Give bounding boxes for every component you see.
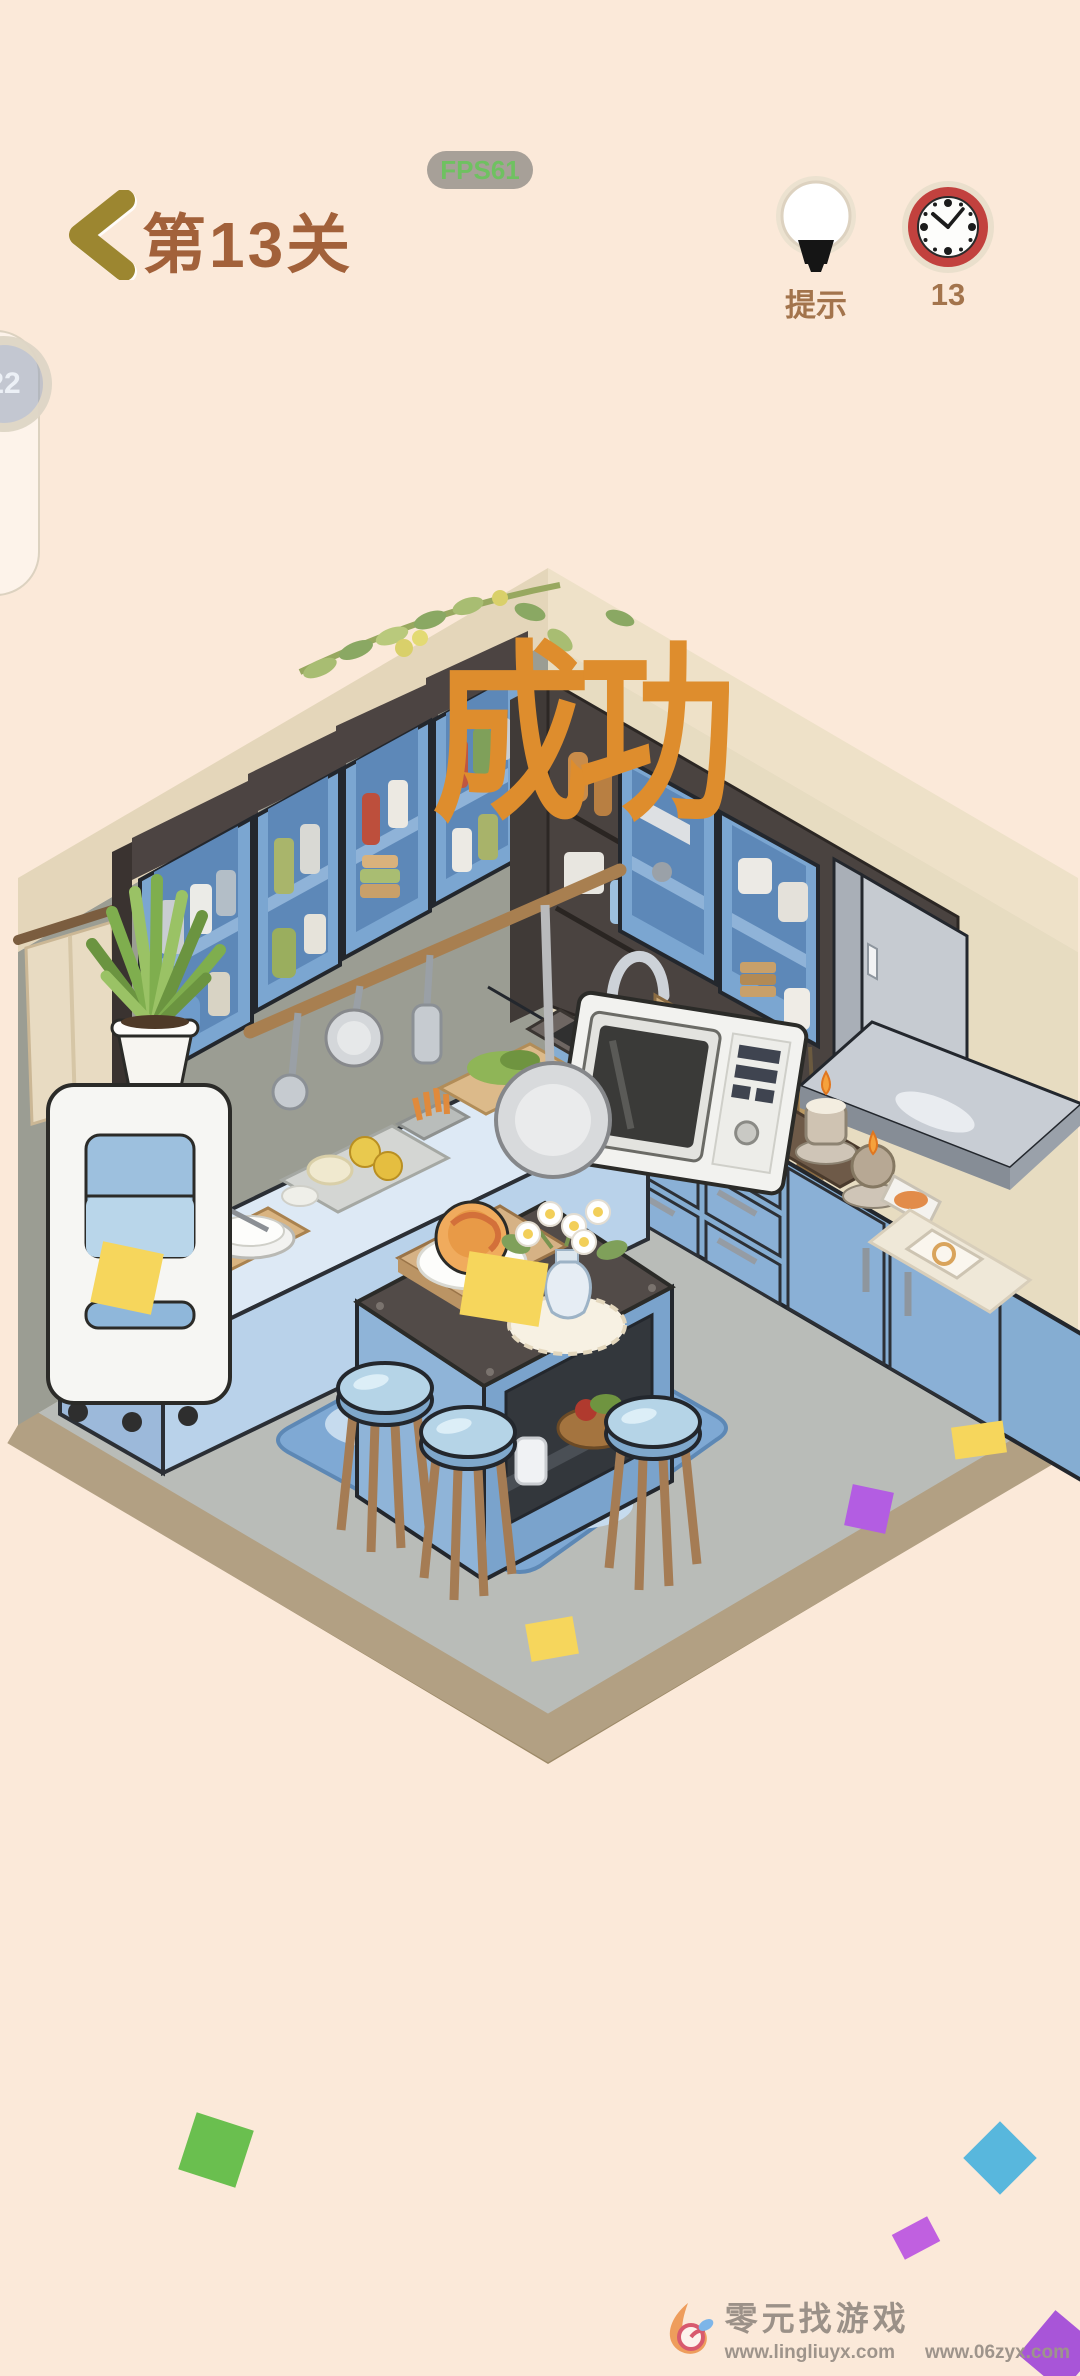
brand-url-1: www.lingliuyx.com bbox=[725, 2342, 895, 2364]
game-screen: 第13关 FPS61 提示 13 22 成功 bbox=[0, 0, 1080, 2376]
clock-icon bbox=[900, 179, 996, 275]
watermark: 零元找游戏 www.lingliuyx.com www.06zyx.com bbox=[661, 2292, 1070, 2364]
brand-logo-icon bbox=[661, 2299, 715, 2357]
hint-button[interactable]: 提示 bbox=[770, 174, 862, 314]
back-button[interactable] bbox=[64, 190, 140, 280]
hint-label: 提示 bbox=[770, 280, 862, 325]
timer-widget: 13 bbox=[900, 179, 996, 313]
brand-name: 零元找游戏 bbox=[725, 2292, 910, 2340]
timer-value: 13 bbox=[900, 277, 996, 313]
lightbulb-icon bbox=[770, 174, 862, 278]
success-banner: 成功 bbox=[408, 640, 748, 833]
level-title: 第13关 bbox=[142, 194, 353, 286]
back-arrow-icon bbox=[64, 190, 140, 280]
brand-url-2: www.06zyx.com bbox=[925, 2342, 1070, 2364]
kitchen-scene[interactable] bbox=[0, 0, 1080, 2376]
fps-badge: FPS61 bbox=[427, 151, 533, 189]
